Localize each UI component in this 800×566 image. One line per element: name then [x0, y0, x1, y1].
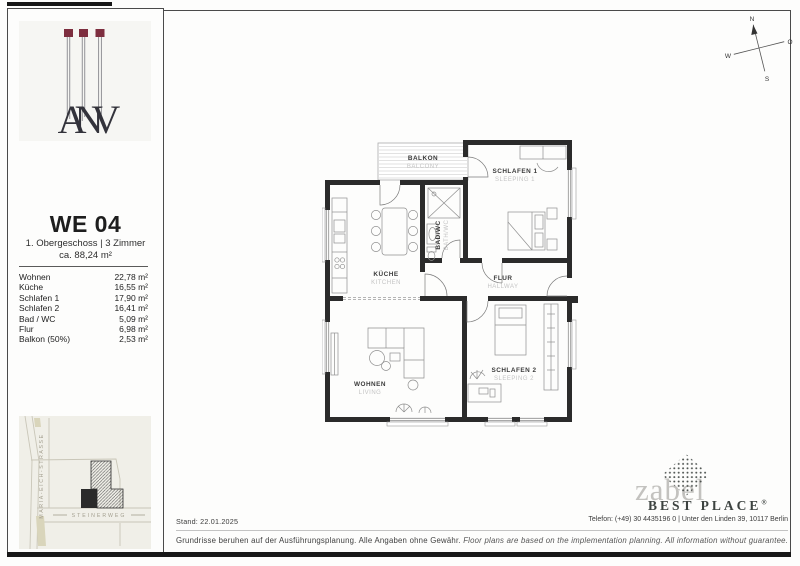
location-map: MARIA-EICH-STRASSE STEINERWEG — [19, 416, 151, 549]
table-row: Flur6,98 m² — [19, 324, 148, 334]
label-sleeping2: SLEEPING 2 — [494, 376, 534, 382]
floor-plan: BALKON BALCONY SCHLAFEN 1 SLEEPING 1 KÜC… — [322, 132, 578, 428]
unit-code: WE 04 — [8, 211, 163, 238]
dining-table — [371, 208, 417, 255]
room-area: 5,09 m² — [119, 314, 148, 324]
disclaimer: Grundrisse beruhen auf der Ausführungspl… — [176, 536, 788, 545]
label-hallway: HALLWAY — [487, 284, 518, 290]
kitchen-counter — [332, 198, 347, 293]
best-place-text: BEST PLACE — [648, 498, 761, 513]
bed-single — [468, 304, 558, 402]
table-row: Schlafen 216,41 m² — [19, 303, 148, 313]
label-flur: FLUR — [493, 275, 512, 282]
compass-s: S — [765, 76, 770, 83]
map-road-fill — [34, 418, 41, 427]
brand-logos: zabel BEST PLACE® — [630, 452, 798, 514]
room-label: Flur — [19, 324, 34, 334]
table-row: Bad / WC5,09 m² — [19, 314, 148, 324]
label-bad: BAD/WC — [435, 220, 442, 249]
map-unit-marker — [81, 489, 97, 508]
bed-double — [508, 146, 566, 250]
room-label: Bad / WC — [19, 314, 55, 324]
sidebar: ANV WE 04 1. Obergeschoss | 3 Zimmer ca.… — [7, 8, 164, 554]
compass-w: W — [725, 53, 732, 60]
sidebar-divider — [19, 266, 148, 267]
table-row: Schlafen 117,90 m² — [19, 293, 148, 303]
room-label: Schlafen 2 — [19, 303, 59, 313]
room-label: Schlafen 1 — [19, 293, 59, 303]
registered-mark: ® — [761, 499, 766, 507]
room-label: Küche — [19, 282, 43, 292]
label-kitchen: KITCHEN — [371, 280, 401, 286]
anv-logo: ANV — [19, 21, 151, 141]
compass: N O S W — [722, 12, 798, 88]
room-area: 17,90 m² — [114, 293, 148, 303]
room-area: 16,55 m² — [114, 282, 148, 292]
unit-floor-rooms: 1. Obergeschoss | 3 Zimmer — [8, 238, 163, 249]
label-bathwc: BATH/WC — [444, 219, 450, 250]
room-label: Wohnen — [19, 272, 51, 282]
room-labels: BALKON BALCONY SCHLAFEN 1 SLEEPING 1 KÜC… — [354, 155, 538, 396]
table-row: Wohnen22,78 m² — [19, 272, 148, 282]
label-balcony: BALCONY — [407, 164, 439, 170]
room-area: 22,78 m² — [114, 272, 148, 282]
compass-o: O — [787, 39, 792, 46]
label-schlafen2: SCHLAFEN 2 — [491, 367, 536, 374]
label-wohnen: WOHNEN — [354, 381, 386, 388]
contact-line: Telefon: (+49) 30 4435196 0 | Unter den … — [588, 516, 788, 523]
label-sleeping1: SLEEPING 1 — [495, 177, 535, 183]
bottom-accent-bar — [7, 552, 791, 557]
footer-rule — [176, 530, 788, 531]
label-kueche: KÜCHE — [373, 269, 398, 278]
area-table: Wohnen22,78 m² Küche16,55 m² Schlafen 11… — [19, 272, 148, 345]
table-row: Balkon (50%)2,53 m² — [19, 334, 148, 344]
floorplan-sheet: ANV WE 04 1. Obergeschoss | 3 Zimmer ca.… — [0, 0, 800, 566]
room-area: 16,41 m² — [114, 303, 148, 313]
room-area: 6,98 m² — [119, 324, 148, 334]
label-balkon: BALKON — [408, 155, 438, 162]
north-arrow-icon — [751, 25, 757, 35]
disclaimer-english: Floor plans are based on the implementat… — [463, 536, 788, 545]
compass-n: N — [750, 16, 755, 23]
room-area: 2,53 m² — [119, 334, 148, 344]
walls — [325, 140, 578, 422]
table-row: Küche16,55 m² — [19, 282, 148, 292]
top-accent-bar — [7, 2, 112, 6]
street-label-horizontal: STEINERWEG — [72, 513, 127, 519]
room-label: Balkon (50%) — [19, 334, 70, 344]
plant-icon — [396, 404, 431, 413]
unit-total-area: ca. 88,24 m² — [8, 250, 163, 261]
label-living: LIVING — [359, 390, 382, 396]
label-schlafen1: SCHLAFEN 1 — [492, 168, 537, 175]
plan-date: Stand: 22.01.2025 — [176, 517, 238, 526]
logo-monogram: ANV — [58, 97, 121, 141]
best-place-logo: BEST PLACE® — [648, 498, 767, 514]
zabel-dots-icon — [660, 454, 712, 496]
street-label-vertical: MARIA-EICH-STRASSE — [39, 433, 45, 518]
disclaimer-german: Grundrisse beruhen auf der Ausführungspl… — [176, 536, 461, 545]
